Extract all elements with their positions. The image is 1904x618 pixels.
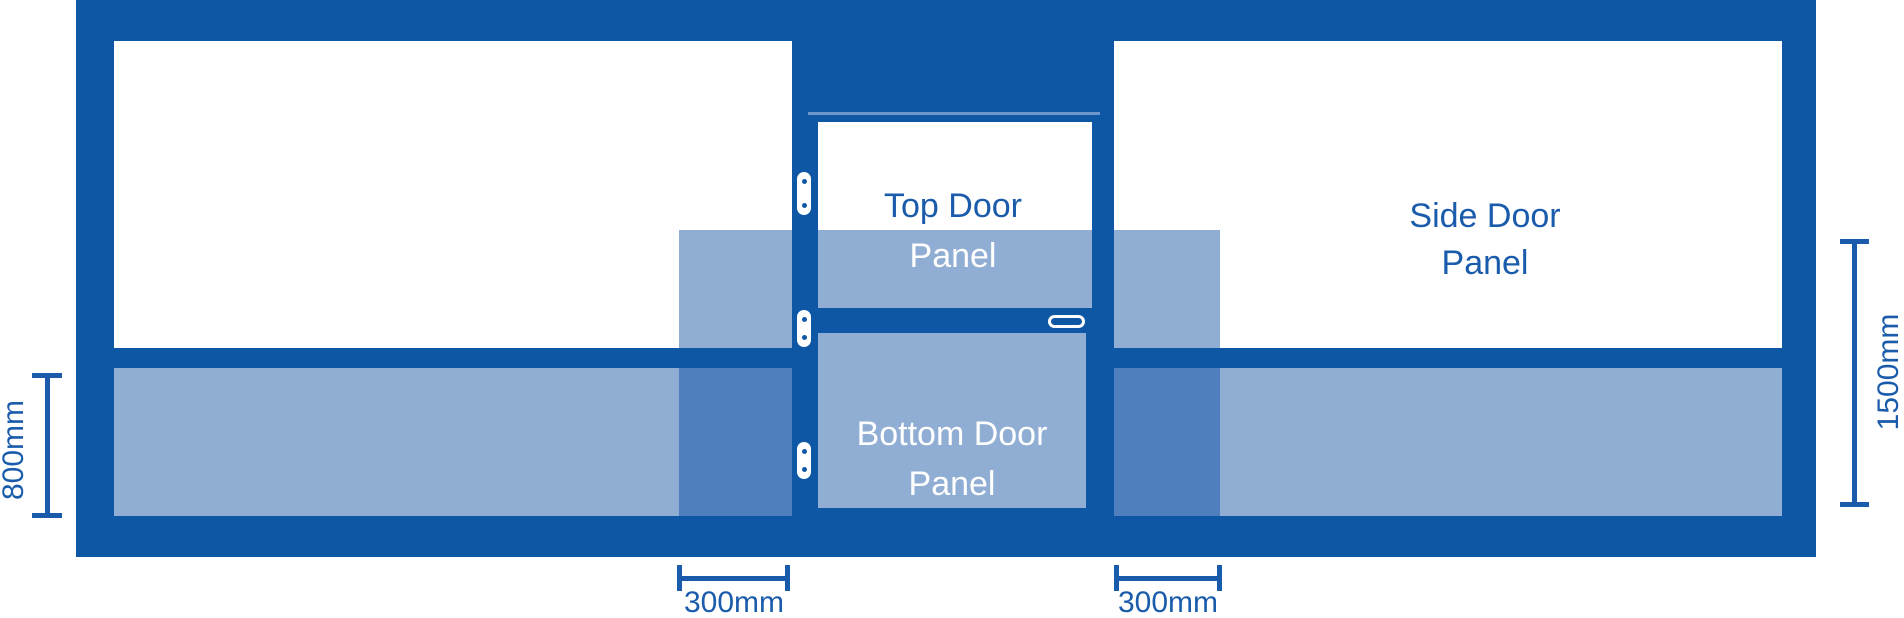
dim-1500-cap-top	[1840, 239, 1869, 244]
hinge-screw-icon	[802, 317, 807, 322]
hinge-screw-icon	[802, 467, 807, 472]
bottom-door-panel-label-line1: Bottom Door	[818, 416, 1086, 452]
side-door-panel-label-line1: Side Door	[1325, 198, 1645, 234]
dim-300-left-cap-b	[785, 565, 790, 591]
dim-800-line	[45, 374, 50, 518]
dim-800-cap-top	[32, 373, 62, 378]
overlap-zone-left	[679, 368, 792, 516]
hinge-screw-icon	[802, 449, 807, 454]
dim-1500-cap-bottom	[1840, 502, 1869, 507]
bottom-door-panel-label-line2: Panel	[818, 466, 1086, 502]
dim-1500-line	[1852, 241, 1857, 507]
door-top-seam	[808, 112, 1100, 115]
dim-300-left-line	[677, 576, 790, 581]
door-surround-highlight-left	[679, 230, 792, 348]
dim-300-right-label: 300mm	[1088, 589, 1248, 617]
dim-300-left-label: 300mm	[654, 589, 814, 617]
door-diagram: Top Door Panel Bottom Door Panel Side Do…	[0, 0, 1904, 618]
side-door-panel-label-line2: Panel	[1325, 245, 1645, 281]
dim-1500-label: 1500mm	[1874, 292, 1904, 452]
dim-800-cap-bottom	[32, 513, 62, 518]
hinge-screw-icon	[802, 335, 807, 340]
top-door-panel-label-line1: Top Door	[792, 188, 1114, 224]
top-door-panel-label-line2: Panel	[792, 238, 1114, 274]
dim-300-left-cap-a	[677, 565, 682, 591]
hinge-middle-icon	[797, 310, 811, 347]
dim-800-label: 800mm	[0, 390, 29, 510]
door-handle-icon	[1048, 315, 1085, 328]
door-surround-highlight-right	[1114, 230, 1220, 348]
hinge-bottom-icon	[797, 442, 811, 479]
dim-300-right-line	[1114, 576, 1222, 581]
hinge-screw-icon	[802, 179, 807, 184]
overlap-zone-right	[1114, 368, 1220, 516]
